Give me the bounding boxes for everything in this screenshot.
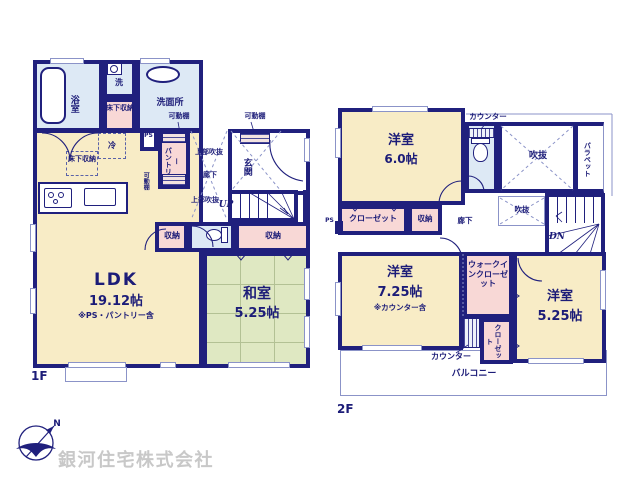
label-closet-a: クローゼット (340, 214, 406, 224)
label-bedroom3-size: 5.25帖 (518, 309, 602, 325)
sink-icon (146, 66, 180, 83)
wall-segment (303, 190, 310, 222)
label-floor-2f: 2F (337, 402, 361, 416)
label-dn: DN (546, 232, 568, 243)
label-ldk-note: ※PS・パントリー含 (58, 311, 174, 321)
window (335, 282, 341, 316)
toilet-bowl-icon (206, 229, 222, 241)
label-washroom: 洗面所 (146, 98, 194, 109)
bathtub-icon (40, 67, 66, 124)
label-counter-b: カウンター (428, 352, 474, 362)
company-name: 銀河住宅株式会社 (58, 446, 214, 472)
porch-step (65, 367, 127, 382)
window (335, 128, 341, 158)
label-hall-2f: 廊下 (450, 216, 480, 225)
label-up: UP (216, 200, 236, 211)
label-ps-2f: PS (325, 217, 334, 224)
label-counter-a: カウンター (466, 112, 510, 121)
label-bedroom2-size: 7.25帖 (356, 285, 444, 301)
label-closet-b: クローゼット (484, 321, 502, 361)
window (30, 224, 36, 252)
label-pantry: パントリー (164, 146, 184, 176)
label-underfloor-a: 床下収納 (106, 104, 134, 112)
label-shelf-a: 可動棚 (162, 112, 196, 120)
label-shelf-side: 可動棚 (142, 168, 149, 194)
window (304, 268, 310, 300)
room-bedroom3 (513, 252, 606, 363)
label-washitsu-name: 和室 (226, 286, 288, 303)
compass-north-label: N (50, 419, 64, 430)
label-washitsu-size: 5.25帖 (222, 306, 292, 322)
label-parapet: パラペット (583, 131, 591, 187)
toilet-tank-icon (471, 138, 490, 144)
window (160, 362, 176, 368)
burner-icon (53, 199, 58, 204)
window (30, 288, 36, 314)
floor-plan-canvas: 浴室 洗 床下収納 洗面所 可動棚 可動棚 可動棚 PS パントリー 冷 床下収… (0, 0, 640, 480)
label-wic: ウォークインクローゼット (468, 260, 508, 289)
label-void-b: 吹抜 (507, 205, 537, 214)
washing-machine-drum-icon (110, 65, 118, 73)
label-ldk-size: 19.12帖 (70, 294, 162, 310)
window (228, 362, 290, 368)
window (600, 270, 606, 310)
entrance-door-gap (304, 138, 310, 162)
label-balcony: バルコニー (428, 369, 520, 380)
toilet-tank-icon (221, 227, 228, 243)
burner-icon (48, 192, 54, 198)
compass-icon (16, 426, 56, 460)
label-washer: 洗 (104, 78, 134, 88)
label-bath: 浴室 (68, 88, 79, 120)
label-bedroom3-name: 洋室 (522, 289, 598, 305)
label-bedroom1-name: 洋室 (365, 133, 437, 149)
label-hall-1f: 廊下 (196, 171, 224, 179)
window (372, 106, 428, 112)
label-bedroom2-name: 洋室 (360, 265, 440, 281)
label-storage-b: 収納 (248, 231, 298, 241)
stair-treads-1f (232, 194, 272, 218)
label-bedroom1-size: 6.0帖 (365, 152, 437, 166)
stove-icon (44, 188, 72, 208)
shelf-hatch (162, 133, 186, 143)
window (528, 358, 584, 364)
label-underfloor-b: 床下収納 (68, 155, 96, 163)
label-storage-a: 収納 (157, 231, 187, 241)
label-void-a: 吹抜 (523, 151, 553, 162)
toilet-bowl-icon (473, 143, 488, 162)
label-ldk-name: LDK (70, 270, 162, 290)
label-ps: PS (144, 132, 153, 139)
counter-hatch-bedroom2 (463, 318, 480, 348)
label-storage-2f: 収納 (409, 214, 441, 223)
stair-treads-2f (549, 197, 601, 223)
window (304, 316, 310, 348)
window (140, 58, 170, 64)
burner-icon (58, 192, 64, 198)
label-genkan: 玄関 (241, 150, 252, 184)
label-fridge: 冷 (98, 141, 126, 151)
label-upper-void-a: 上部吹抜 (194, 148, 224, 156)
window (68, 362, 126, 368)
kitchen-sink-icon (84, 188, 116, 206)
label-floor-1f: 1F (31, 369, 55, 383)
shoe-shelf-hatch (240, 133, 270, 144)
window (362, 345, 422, 351)
window (50, 58, 84, 64)
counter-hatch-toilet (468, 128, 495, 138)
label-shelf-b: 可動棚 (238, 112, 272, 120)
label-bedroom2-note: ※カウンター含 (352, 303, 448, 312)
